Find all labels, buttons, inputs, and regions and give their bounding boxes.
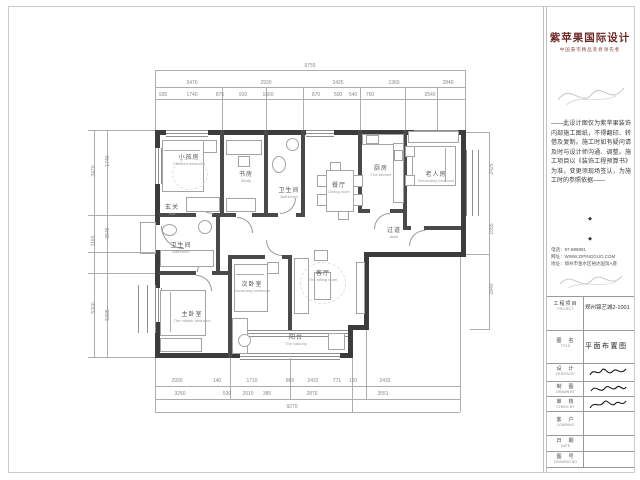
cabinet-study [226,198,256,212]
room-label-corridor: 过道Aisle [364,228,424,239]
room-label-kitchen: 厨房The kitchen [351,166,411,177]
dim: 3545 [105,218,111,248]
check-by-label: 审 核CHECK BY [549,399,582,409]
titleblock-line [547,330,634,331]
dim-line-bottom-total [155,412,460,413]
dim: 2930 [165,378,189,384]
floor-plan-sheet: 小孩房Children bedroom 书房Study 卫生间Bathroom … [0,0,640,480]
wall-second-north-1 [228,255,265,259]
dim: 1165 [91,226,97,256]
dim-ext [88,252,155,253]
dim: 3250 [168,391,192,397]
dim: 875 [210,92,230,98]
flourish-ornament [552,78,630,112]
room-label-study: 书房Study [216,172,276,183]
wall-kitchen-south-1 [358,209,370,213]
wall-elder-south-2 [424,226,461,230]
room-label-children: 小孩房Children bedroom [159,155,219,166]
wall-bath-dining [301,130,305,217]
wall-step-south-east [368,252,466,257]
plant-icon [238,334,251,347]
titleblock-line [547,435,634,436]
dim: 870 [306,92,326,98]
dim-ext [155,358,156,412]
floor-decor [300,262,346,304]
dim: 1660 [258,92,278,98]
dim: 140 [205,378,229,384]
room-label-sitting: 客厅The sitting room [293,271,353,282]
dim: 5300 [91,293,97,323]
dim-ext [155,70,156,130]
titleblock-line [547,363,634,364]
dim-ext [465,70,466,130]
room-label-dining: 餐厅Dining room [309,183,369,194]
dim: 760 [360,92,380,98]
nightstand-children [203,140,217,153]
dining-chair [338,211,349,220]
dim-line-bottom-2 [155,399,460,400]
dim: 2876 [300,391,324,397]
room-label-elder: 老人房Secondary bedroom [406,172,466,183]
sink-top-icon [286,138,299,151]
dim-ext [88,273,155,274]
project-value: 郑州锦艺城2-1001 [585,305,632,312]
dim-line-top-total [155,70,465,71]
dim: 2840 [489,274,495,304]
sheet-border [8,6,635,473]
dim: 2930 [254,80,278,86]
dim-ext [88,215,155,216]
contact-block: 电话：87-888881 网址：WWW.ZIPINGGUO.COM 地址：郑州市… [551,246,631,267]
wall-corridor-north-3 [252,213,278,217]
room-label-balcony: 阳台The balcony [266,335,326,346]
brand-logo: 紫苹果国际设计 [546,30,634,45]
washer-icon [328,333,345,350]
dim: 1740 [105,146,111,176]
dim-ext [352,358,353,412]
dining-chair [353,194,363,206]
dim: 1710 [240,378,264,384]
bullet-diamond: ◆ [546,236,634,242]
dim-ext [366,330,367,399]
toilet-top-icon [272,156,286,173]
date-label: 日 期DATE [549,438,582,448]
nightstand-second [267,262,279,274]
dim-ext [303,87,304,130]
bed-second-pillow-line [236,274,264,275]
contact-web: 网址：WWW.ZIPINGGUO.COM [551,253,631,260]
client-label: 客 户COMPANY [549,417,582,427]
dim-line-top-2 [155,99,465,100]
dim: 5305 [105,300,111,330]
design-notes: ——此设计图仅为紫苹果装饰内部施工图纸，不得翻印、转借及复制。施工时如有疑问请及… [551,120,631,187]
dim: 2840 [436,80,460,86]
titleblock-line [547,296,634,297]
dim: 3470 [180,80,204,86]
toilet-left-icon [162,224,177,236]
wall-master-north-1 [159,271,196,275]
title-label: 图 名TITLE [549,338,582,348]
dim: 2433 [373,378,397,384]
dim-ext [460,257,461,412]
dim: 120 [341,378,365,384]
wall-kitchen-south-2 [390,209,403,213]
wardrobe-elder [408,131,459,143]
drawn-by-label: 制 图DRAWN BY [549,384,582,394]
bay-window-west [138,285,156,333]
dim-top-total: 9755 [290,63,330,69]
drawing-title: 平面布置图 [585,342,632,351]
titleblock-line [547,467,634,468]
dim-ext [470,329,490,330]
dim-line-bottom-1 [155,386,460,387]
bullet-diamond: ◆ [546,216,634,222]
dim-ext [88,357,155,358]
chair-study [238,156,250,167]
room-label-bath-left: 卫生间Bathroom [151,243,211,254]
dim-ext [466,132,490,133]
dim: 865 [278,378,302,384]
room-label-master: 主卧室The master bedroom [162,312,222,323]
room-label-second: 次卧室Secondary bedroom [222,282,282,293]
dim: 1360 [382,80,406,86]
window-children [166,130,208,137]
dim-ext [88,130,155,131]
kitchen-stove-icon [366,135,379,144]
desk-study [226,140,262,155]
project-label: 工程项目PROJECT [549,301,582,311]
sink-left-icon [198,220,212,234]
kitchen-sink-icon [394,150,403,161]
dim: 2540 [420,92,440,98]
panel-divider-line [543,6,544,472]
contact-address: 地址：郑州市金水区裕达国贸A座 [551,260,631,267]
nightstand-elder [405,146,415,157]
dim: 935 [153,92,173,98]
titleblock-divider [583,296,584,467]
titleblock-line [547,411,634,412]
dim: 3551 [371,391,395,397]
wall-corridor-north-4 [296,213,305,217]
designer-signature [588,365,628,379]
design-by-label: 设 计DESIGN BY [549,366,582,376]
dim: 2432 [301,378,325,384]
dim: 1055 [489,214,495,244]
contact-phone: 电话：87-888881 [551,246,631,253]
side-table-icon [314,250,328,261]
dim-ext [405,87,406,130]
wall-bathleft-east [216,217,220,275]
bay-window-east [466,150,479,216]
dim: 1740 [182,92,202,98]
titleblock-line [547,451,634,452]
dim: 2425 [489,154,495,184]
brand-slogan: 中国豪宅精品装修领先者 [546,47,634,53]
dim-ext [466,254,490,255]
window-west-children [155,148,162,184]
checker-signature [588,397,628,411]
dim: 2425 [326,80,350,86]
wall-second-living [288,259,292,330]
dim-bottom-total: 9270 [272,404,312,410]
dim: 385 [255,391,279,397]
drawing-no-label: 图 号DRAWING NO [549,454,582,464]
dim: 910 [233,92,253,98]
dim-line-top-1 [155,87,465,88]
drafter-signature [588,382,628,396]
bed-children-pillow-line [164,150,200,151]
tv-cabinet-icon [356,262,365,314]
window-dining [306,130,334,137]
dining-chair [330,162,341,171]
dim: 3470 [91,156,97,186]
wardrobe-master [160,338,202,352]
stamp-flourish [556,268,626,294]
